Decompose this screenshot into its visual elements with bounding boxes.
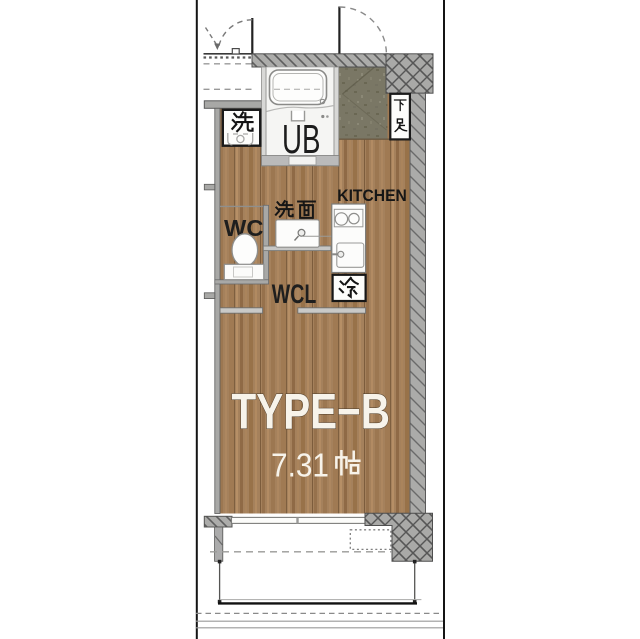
svg-text:TYPE−B: TYPE−B <box>232 383 391 439</box>
svg-text:WCL: WCL <box>272 279 317 309</box>
svg-text:UB: UB <box>282 116 321 162</box>
svg-text:7.31: 7.31 <box>271 447 329 484</box>
svg-text:KITCHEN: KITCHEN <box>337 186 407 205</box>
